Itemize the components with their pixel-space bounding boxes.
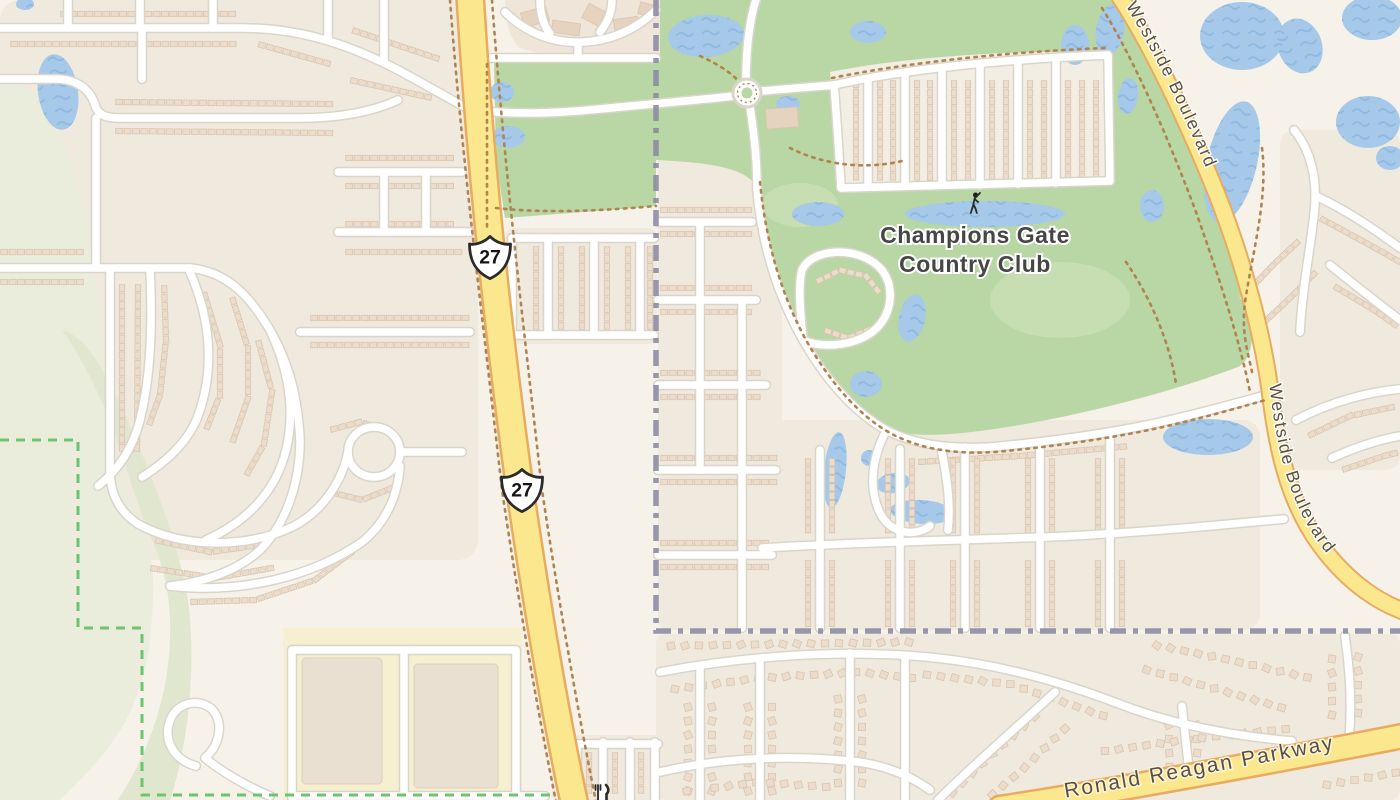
building (1027, 89, 1032, 96)
route-shield-number: 27 (479, 246, 501, 268)
building (1354, 681, 1361, 689)
building (703, 564, 710, 569)
building (34, 279, 41, 284)
building (19, 41, 26, 46)
building (1003, 140, 1008, 147)
building (914, 173, 919, 180)
building (885, 594, 890, 601)
building (326, 130, 333, 135)
building (927, 114, 932, 121)
building (135, 352, 140, 359)
building (284, 101, 291, 106)
building (625, 247, 630, 254)
building (119, 318, 124, 325)
building (728, 455, 735, 460)
building (212, 41, 219, 46)
building (370, 315, 377, 320)
building (579, 247, 584, 254)
building (950, 578, 955, 585)
building (68, 249, 75, 254)
building (533, 255, 538, 262)
building (1119, 509, 1124, 516)
building (612, 761, 617, 768)
building (1387, 404, 1395, 411)
building (245, 354, 250, 361)
building (877, 131, 882, 138)
building (579, 255, 584, 262)
building (447, 249, 454, 254)
building (1041, 98, 1046, 105)
building (249, 597, 256, 603)
building (266, 405, 272, 413)
building (68, 279, 75, 284)
building (558, 289, 563, 296)
building (217, 383, 222, 390)
building (667, 642, 676, 650)
building (1364, 774, 1372, 782)
building (753, 370, 760, 375)
building (1119, 501, 1124, 508)
building (135, 293, 140, 300)
building (245, 362, 250, 369)
country-club-label-line1: Champions Gate (880, 222, 1070, 248)
building (1079, 140, 1084, 147)
building (927, 173, 932, 180)
building (708, 731, 715, 739)
building (829, 569, 834, 576)
building (661, 455, 668, 460)
building (703, 540, 710, 545)
building (669, 479, 676, 484)
building (927, 140, 932, 147)
building (424, 94, 432, 101)
building (1025, 492, 1030, 499)
building (383, 85, 391, 92)
building (1095, 518, 1100, 525)
building (241, 597, 248, 603)
building (1193, 749, 1201, 757)
building (909, 578, 914, 585)
building (135, 327, 140, 334)
building (413, 183, 420, 188)
building (951, 156, 956, 163)
building (1208, 652, 1217, 660)
building (877, 123, 882, 130)
building (135, 369, 140, 376)
building (853, 156, 858, 163)
building (1119, 578, 1124, 585)
building (612, 770, 617, 777)
building (119, 302, 124, 309)
building (1065, 140, 1070, 147)
building (708, 745, 716, 753)
building (78, 41, 85, 46)
building (216, 129, 223, 134)
building (686, 455, 693, 460)
building (1025, 561, 1030, 568)
building (112, 41, 119, 46)
building (1049, 484, 1054, 491)
building (119, 411, 124, 418)
building (1282, 725, 1290, 733)
building (669, 231, 676, 236)
building (1025, 501, 1030, 508)
building (745, 231, 752, 236)
building (805, 611, 810, 618)
building (974, 459, 979, 466)
building (245, 346, 250, 353)
building (638, 778, 643, 785)
building (805, 620, 810, 627)
building (625, 255, 630, 262)
map-canvas[interactable]: 27 27 Champions Gate Country Club Westsi… (0, 0, 1400, 800)
building (1027, 81, 1032, 88)
building (311, 342, 318, 347)
building (647, 272, 652, 279)
building (1049, 578, 1054, 585)
building (558, 280, 563, 287)
building (768, 745, 776, 753)
building (267, 130, 274, 135)
building (1025, 603, 1030, 610)
building (119, 436, 124, 443)
building (604, 280, 609, 287)
building (736, 207, 743, 212)
building (533, 322, 538, 329)
building (989, 123, 994, 130)
building (354, 183, 361, 188)
building (834, 736, 843, 745)
building (877, 106, 882, 113)
building (669, 285, 676, 290)
building (951, 140, 956, 147)
building (877, 89, 882, 96)
building (399, 88, 407, 95)
building (951, 89, 956, 96)
building (275, 101, 282, 106)
building (579, 314, 584, 321)
building (1065, 131, 1070, 138)
building (421, 155, 428, 160)
building (1095, 578, 1100, 585)
building (170, 41, 177, 46)
building (558, 264, 563, 271)
building (217, 391, 222, 398)
building (1049, 492, 1054, 499)
building (1093, 123, 1098, 130)
building (927, 89, 932, 96)
building (1079, 114, 1084, 121)
building (877, 114, 882, 121)
building (119, 402, 124, 409)
building (1027, 156, 1032, 163)
building (625, 264, 630, 271)
building (951, 106, 956, 113)
building (993, 679, 1001, 687)
building (159, 369, 165, 377)
building (720, 540, 727, 545)
building (1093, 148, 1098, 155)
building (396, 155, 403, 160)
building (647, 280, 652, 287)
building (950, 603, 955, 610)
building (720, 285, 727, 290)
building (909, 518, 914, 525)
building (437, 342, 444, 347)
building (890, 131, 895, 138)
building (768, 731, 776, 740)
building (135, 285, 140, 292)
building (1210, 685, 1218, 693)
building (1328, 711, 1336, 720)
building (768, 787, 777, 796)
building (625, 280, 630, 287)
building (848, 639, 857, 648)
building (885, 586, 890, 593)
building (119, 377, 124, 384)
building (604, 289, 609, 296)
building (447, 183, 454, 188)
building (914, 98, 919, 105)
building (119, 327, 124, 334)
building (149, 129, 156, 134)
building (317, 130, 324, 135)
building (141, 100, 148, 105)
building (1142, 741, 1151, 749)
building (914, 148, 919, 155)
building (161, 286, 167, 293)
building (647, 289, 652, 296)
building (363, 155, 370, 160)
building (936, 672, 945, 681)
building (853, 173, 858, 180)
building (124, 128, 131, 133)
building (805, 459, 810, 466)
building (1065, 123, 1070, 130)
building (728, 394, 735, 399)
building (989, 165, 994, 172)
building (367, 81, 375, 88)
building (974, 509, 979, 516)
roundabout (733, 79, 761, 107)
building (454, 342, 461, 347)
building (363, 183, 370, 188)
building (1025, 509, 1030, 516)
building (217, 374, 222, 381)
building (18, 249, 25, 254)
building (853, 89, 858, 96)
building (1025, 620, 1030, 627)
building (625, 272, 630, 279)
building (135, 301, 140, 308)
building (103, 11, 110, 16)
building (438, 221, 445, 226)
building (1328, 683, 1336, 691)
building (579, 280, 584, 287)
building (153, 11, 160, 16)
building (141, 129, 148, 134)
building (661, 540, 668, 545)
building (647, 314, 652, 321)
building (950, 459, 955, 466)
building (371, 183, 378, 188)
building (145, 11, 152, 16)
building (965, 156, 970, 163)
building (1049, 594, 1054, 601)
building (128, 41, 135, 46)
building (344, 315, 351, 320)
building (326, 101, 333, 106)
building (834, 709, 842, 717)
building (974, 476, 979, 483)
building (1049, 586, 1054, 593)
building (1065, 98, 1070, 105)
building (808, 782, 816, 790)
building (86, 11, 93, 16)
building (951, 148, 956, 155)
building (378, 342, 385, 347)
building (1165, 749, 1173, 757)
building (1093, 89, 1098, 96)
building (438, 155, 445, 160)
building (965, 165, 970, 172)
building (1003, 89, 1008, 96)
building (1094, 446, 1101, 452)
building (604, 297, 609, 304)
building (346, 183, 353, 188)
building (1079, 106, 1084, 113)
building (625, 297, 630, 304)
building (1025, 578, 1030, 585)
building (1049, 501, 1054, 508)
building (753, 564, 760, 569)
building (579, 264, 584, 271)
building (403, 342, 410, 347)
building (745, 207, 752, 212)
building (965, 123, 970, 130)
building (847, 269, 855, 276)
building (877, 173, 882, 180)
building (1119, 603, 1124, 610)
building (116, 99, 123, 104)
building (720, 370, 727, 375)
building (317, 101, 324, 106)
building (604, 314, 609, 321)
building (625, 322, 630, 329)
building (805, 561, 810, 568)
building (909, 467, 914, 474)
building (70, 41, 77, 46)
building (175, 569, 183, 575)
building (396, 221, 403, 226)
building (686, 370, 693, 375)
building (678, 564, 685, 569)
building (877, 140, 882, 147)
building (370, 342, 377, 347)
building (728, 231, 735, 236)
building (858, 737, 866, 745)
building (604, 255, 609, 262)
building (336, 342, 343, 347)
building (533, 247, 538, 254)
building (378, 315, 385, 320)
building (829, 586, 834, 593)
building (250, 130, 257, 135)
building (695, 642, 703, 649)
building (1041, 114, 1046, 121)
building (158, 378, 164, 386)
building (413, 249, 420, 254)
building (805, 476, 810, 483)
building (686, 564, 693, 569)
building (111, 11, 118, 16)
building (927, 156, 932, 163)
building (350, 78, 358, 85)
building (1119, 518, 1124, 525)
building (361, 342, 368, 347)
building (386, 342, 393, 347)
building (728, 309, 735, 314)
building (558, 255, 563, 262)
building (1336, 778, 1345, 786)
building (965, 140, 970, 147)
building (119, 394, 124, 401)
building (1392, 769, 1400, 777)
building (853, 140, 858, 147)
building (413, 221, 420, 226)
building (95, 41, 102, 46)
building (720, 207, 727, 212)
building (877, 81, 882, 88)
building (284, 130, 291, 135)
building (430, 249, 437, 254)
building (909, 501, 914, 508)
building (375, 83, 383, 90)
building (909, 484, 914, 491)
building (885, 501, 890, 508)
building (661, 309, 668, 314)
building (558, 247, 563, 254)
building (1041, 106, 1046, 113)
building (183, 100, 190, 105)
building (838, 267, 846, 274)
building (890, 81, 895, 88)
building (258, 101, 265, 106)
building (1041, 148, 1046, 155)
building (805, 518, 810, 525)
building (909, 561, 914, 568)
building (806, 639, 815, 648)
building (890, 165, 895, 172)
building (909, 569, 914, 576)
building (579, 289, 584, 296)
building (890, 173, 895, 180)
building (245, 388, 250, 395)
building (711, 370, 718, 375)
building (258, 567, 266, 574)
building (678, 309, 685, 314)
building (371, 221, 378, 226)
building (877, 156, 882, 163)
building (927, 165, 932, 172)
building (1095, 476, 1100, 483)
building (885, 611, 890, 618)
building (1119, 569, 1124, 576)
building (762, 455, 769, 460)
building (412, 315, 419, 320)
building (124, 99, 131, 104)
building (292, 101, 299, 106)
